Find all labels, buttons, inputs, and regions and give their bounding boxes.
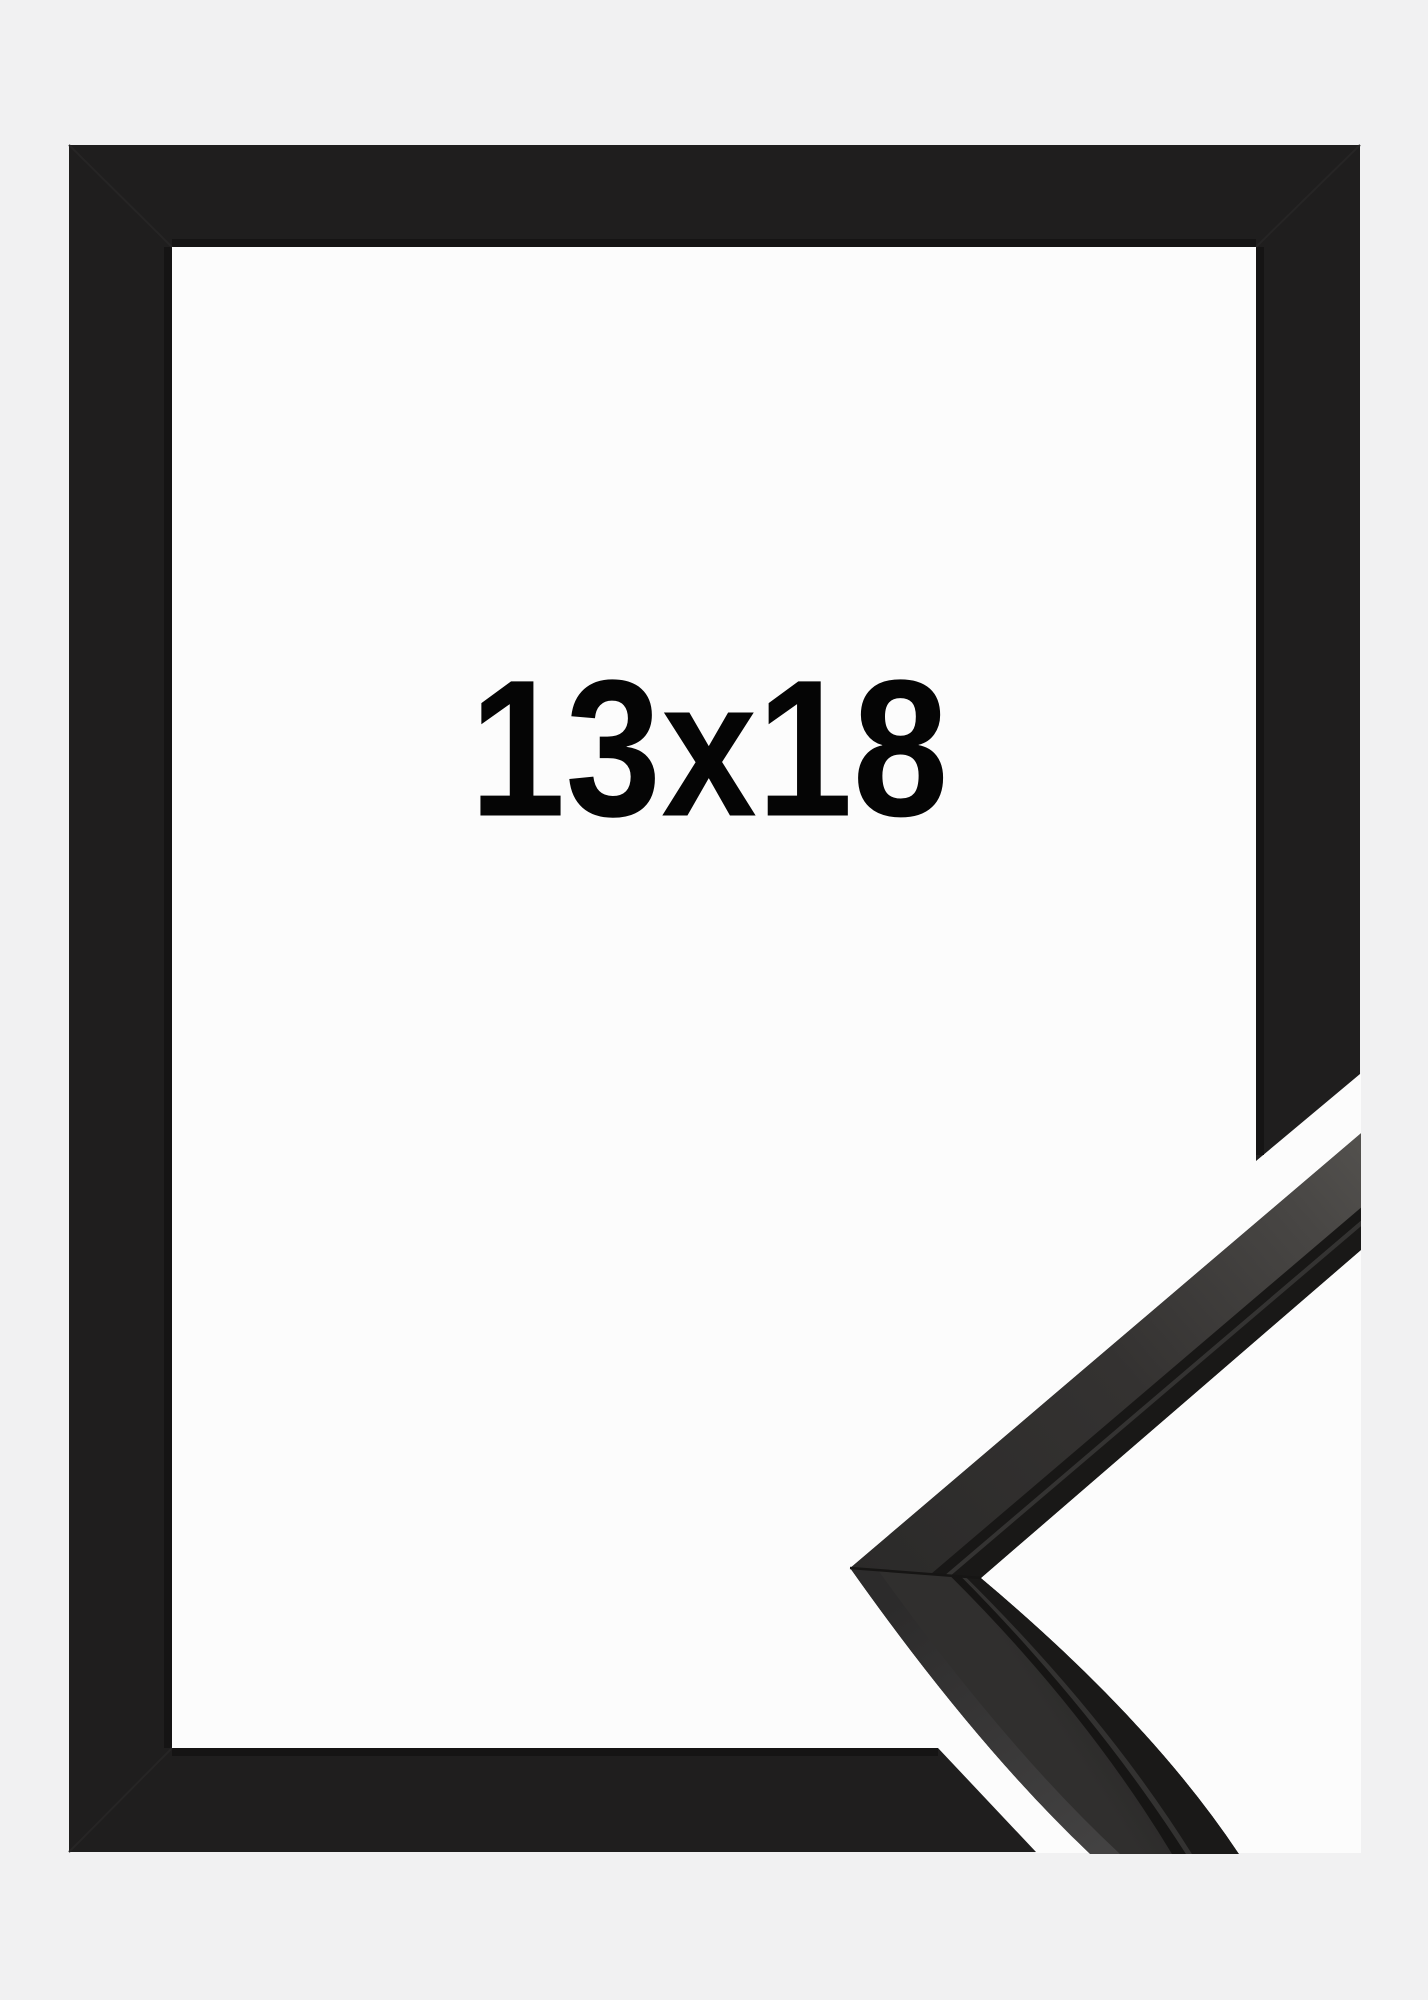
svg-text:13x18: 13x18: [470, 638, 949, 856]
